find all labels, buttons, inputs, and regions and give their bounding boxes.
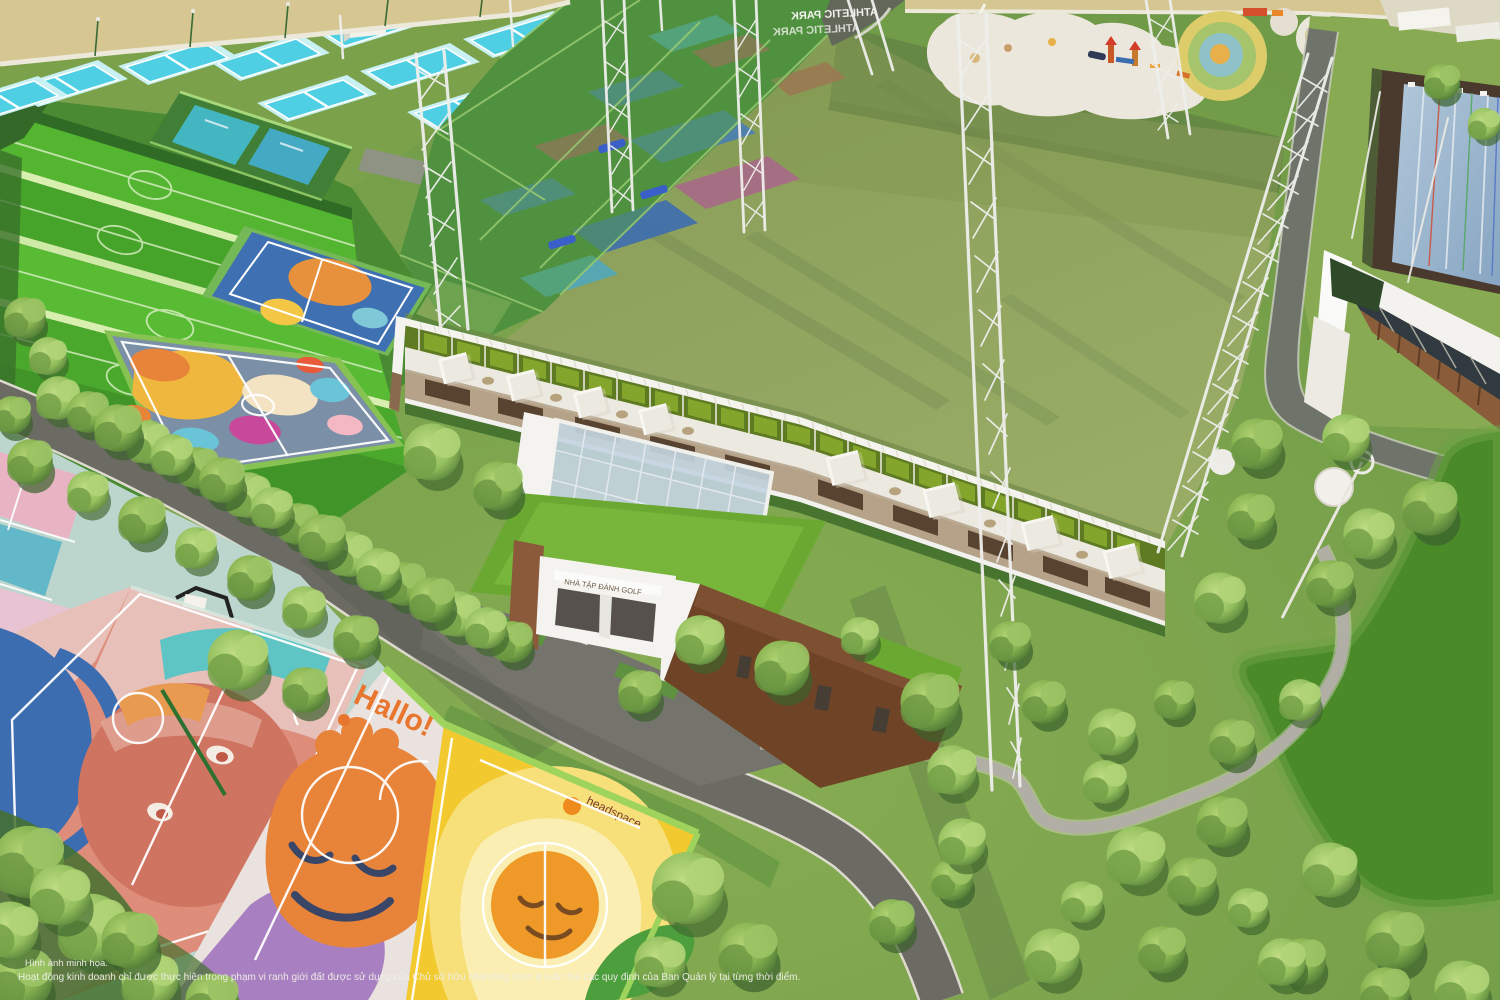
svg-text:Hoạt động kinh doanh chỉ được: Hoạt động kinh doanh chỉ được thực hiện … bbox=[18, 971, 800, 983]
svg-text:Hình ảnh minh họa.: Hình ảnh minh họa. bbox=[25, 958, 108, 969]
